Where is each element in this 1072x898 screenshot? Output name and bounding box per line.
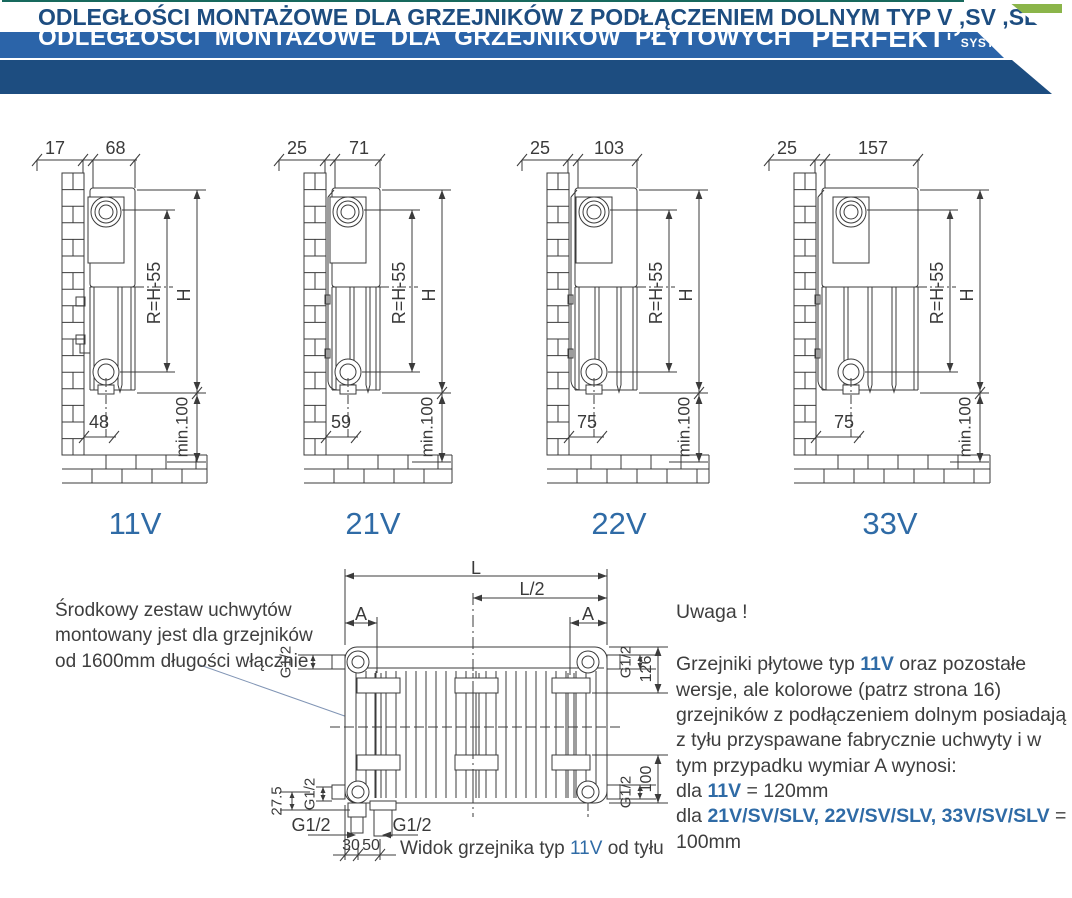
rear-view-caption: Widok grzejnika typ 11V od tyłu [400, 838, 664, 860]
uwaga-text: Grzejniki płytowe typ [676, 653, 860, 675]
page-subtitle: ODLEGŁOŚCI MONTAŻOWE DLA GRZEJNIKÓW Z PO… [38, 4, 1052, 31]
dim-label: 48 [89, 413, 109, 431]
type-label-33v: 33V [862, 506, 917, 542]
dim-label: 103 [594, 139, 624, 157]
dim-label: G1/2 [303, 778, 318, 811]
dim-label: G1/2 [619, 776, 634, 809]
dim-label: H [958, 289, 976, 302]
dim-label: R=H-55 [145, 262, 163, 325]
type-label-11v: 11V [109, 506, 162, 542]
dim-label: 50 [362, 838, 380, 854]
dim-label: 27.5 [270, 786, 285, 815]
dim-label: 75 [577, 413, 597, 431]
dim-label: H [420, 289, 438, 302]
type-label-21v: 21V [345, 506, 400, 542]
dla-line-1: dla 11V = 120mm [676, 779, 1070, 804]
dim-label: R=H-55 [928, 262, 946, 325]
dla2-pre: dla [676, 805, 707, 827]
dim-label: A [355, 605, 367, 623]
dim-label: min.100 [174, 397, 191, 457]
dim-label: min.100 [957, 397, 974, 457]
subtitle-banner-border [0, 60, 1052, 94]
dim-label: 100 [639, 766, 655, 793]
side-view-drawing [762, 135, 1072, 503]
caption-type: 11V [570, 838, 602, 859]
type-label-22v: 22V [591, 506, 646, 542]
subtitle-banner: ODLEGŁOŚCI MONTAŻOWE DLA GRZEJNIKÓW Z PO… [0, 2, 1046, 32]
dim-label: 126 [639, 656, 655, 683]
dim-label: 68 [105, 139, 125, 157]
brand-sub-label: SYSTEM [961, 36, 1014, 50]
dim-label: 59 [331, 413, 351, 431]
side-view-diagram-33v: 25157R=H-55Hmin.10075 [762, 135, 1072, 503]
caption-text-2: od tyłu [602, 838, 663, 859]
dla2-types: 21V/SV/SLV, 22V/SV/SLV, 33V/SV/SLV [707, 805, 1049, 827]
dim-label: R=H-55 [647, 262, 665, 325]
dim-label: 71 [349, 139, 369, 157]
uwaga-title: Uwaga ! [676, 600, 1070, 625]
dla1-pre: dla [676, 780, 707, 802]
dim-label: 30 [342, 838, 360, 854]
uwaga-type-11v: 11V [860, 653, 894, 675]
dim-label: R=H-55 [390, 262, 408, 325]
dim-label: G1/2 [619, 646, 634, 679]
left-note: Środkowy zestaw uchwytów montowany jest … [55, 598, 335, 674]
dim-label: L [471, 559, 481, 577]
dim-label: 25 [777, 139, 797, 157]
catalog-page: ODLEGŁOŚCI MONTAŻOWE DLA GRZEJNIKÓW PŁYT… [0, 0, 1072, 898]
dim-label: min.100 [676, 397, 693, 457]
dim-label: G1/2 [291, 816, 330, 834]
dim-label: 25 [530, 139, 550, 157]
dim-label: min.100 [419, 397, 436, 457]
dim-label: H [677, 289, 695, 302]
dim-label: L/2 [519, 580, 544, 598]
dim-label: 75 [834, 413, 854, 431]
dla-line-2: dla 21V/SV/SLV, 22V/SV/SLV, 33V/SV/SLV =… [676, 804, 1070, 855]
dim-label: A [582, 605, 594, 623]
dla1-value: = 120mm [741, 780, 828, 802]
uwaga-paragraph: Grzejniki płytowe typ 11V oraz pozostałe… [676, 652, 1070, 779]
dim-label: 17 [45, 139, 65, 157]
dla1-type: 11V [707, 780, 741, 802]
uwaga-note: Uwaga ! Grzejniki płytowe typ 11V oraz p… [676, 600, 1070, 855]
dim-label: 25 [287, 139, 307, 157]
dim-label: H [175, 289, 193, 302]
caption-text: Widok grzejnika typ [400, 838, 570, 859]
dim-label: 157 [858, 139, 888, 157]
dim-label: G1/2 [392, 816, 431, 834]
